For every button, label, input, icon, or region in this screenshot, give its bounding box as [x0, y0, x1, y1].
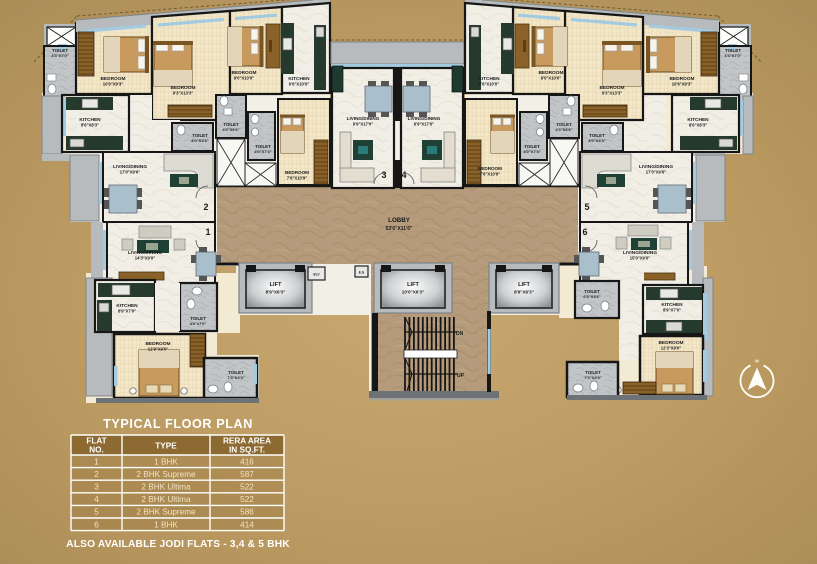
svg-text:2 BHK Supreme: 2 BHK Supreme	[136, 470, 196, 479]
svg-text:4'6"x7'0": 4'6"x7'0"	[190, 321, 207, 326]
svg-text:NO.: NO.	[89, 446, 104, 455]
svg-text:4'0"X7'3": 4'0"X7'3"	[254, 149, 271, 154]
svg-text:DN: DN	[456, 331, 464, 337]
svg-text:N: N	[755, 359, 759, 365]
svg-text:2: 2	[94, 470, 99, 479]
svg-text:8'9"X6'3": 8'9"X6'3"	[266, 290, 286, 295]
svg-text:3: 3	[381, 170, 386, 180]
svg-text:UP: UP	[457, 373, 465, 379]
svg-text:8'6"X8'3": 8'6"X8'3"	[81, 122, 99, 127]
svg-text:2 BHK Ultima: 2 BHK Ultima	[141, 495, 191, 504]
svg-text:ELV: ELV	[313, 273, 320, 277]
svg-text:17'0"X9'6": 17'0"X9'6"	[120, 169, 140, 174]
svg-text:522: 522	[240, 483, 254, 492]
svg-text:6: 6	[582, 227, 587, 237]
svg-text:10'6"X9'3": 10'6"X9'3"	[672, 81, 692, 86]
svg-text:1 BHK: 1 BHK	[154, 457, 178, 466]
svg-text:4'3"X7'0": 4'3"X7'0"	[724, 53, 741, 58]
svg-text:10'0"X6'3": 10'0"X6'3"	[402, 290, 424, 295]
svg-text:LOBBY: LOBBY	[388, 217, 411, 224]
svg-text:9'0"X10'0": 9'0"X10'0"	[541, 75, 561, 80]
svg-text:RERA AREA: RERA AREA	[223, 437, 271, 446]
svg-text:1: 1	[94, 457, 99, 466]
svg-text:9'0"X10'0": 9'0"X10'0"	[234, 75, 254, 80]
svg-text:LIVING/DINING: LIVING/DINING	[408, 116, 441, 121]
svg-text:2 BHK Supreme: 2 BHK Supreme	[136, 508, 196, 517]
svg-text:9'3"X13'3": 9'3"X13'3"	[173, 90, 193, 95]
svg-text:2: 2	[203, 202, 208, 212]
svg-text:7'3"X4'3": 7'3"X4'3"	[227, 375, 244, 380]
svg-text:12'9"X9'0": 12'9"X9'0"	[148, 346, 168, 351]
svg-text:6'5"X4'6": 6'5"X4'6"	[583, 294, 600, 299]
svg-text:9'9"X17'0": 9'9"X17'0"	[353, 121, 373, 126]
svg-text:9'3"X13'3": 9'3"X13'3"	[602, 90, 622, 95]
svg-text:5: 5	[584, 202, 589, 212]
svg-text:BEDROOM: BEDROOM	[478, 166, 502, 171]
svg-text:12'3"X9'0": 12'3"X9'0"	[661, 345, 681, 350]
svg-text:LIFT: LIFT	[270, 282, 282, 288]
svg-text:414: 414	[240, 520, 254, 529]
svg-text:4'0"X7'3": 4'0"X7'3"	[523, 149, 540, 154]
svg-text:8'0"X4'3": 8'0"X4'3"	[191, 138, 208, 143]
svg-text:E.G: E.G	[359, 271, 365, 275]
svg-text:4'3"X7'0": 4'3"X7'0"	[51, 53, 68, 58]
svg-text:6'6"X10'0": 6'6"X10'0"	[289, 81, 309, 86]
svg-text:1: 1	[205, 227, 210, 237]
svg-text:9'9"X17'0": 9'9"X17'0"	[414, 121, 434, 126]
svg-text:15'0"X9'0": 15'0"X9'0"	[630, 255, 650, 260]
svg-text:416: 416	[240, 457, 254, 466]
svg-text:5: 5	[94, 508, 99, 517]
svg-text:7'6"X10'9": 7'6"X10'9"	[287, 175, 307, 180]
svg-text:TYPE: TYPE	[155, 442, 177, 451]
svg-text:8'9"X6'3": 8'9"X6'3"	[514, 290, 534, 295]
svg-text:IN SQ.FT.: IN SQ.FT.	[229, 446, 265, 455]
svg-text:522: 522	[240, 495, 254, 504]
svg-text:4: 4	[94, 495, 99, 504]
svg-text:53'6"X11'6": 53'6"X11'6"	[386, 226, 413, 232]
svg-text:10'6"X9'3": 10'6"X9'3"	[103, 81, 123, 86]
svg-text:3: 3	[94, 483, 99, 492]
svg-text:6: 6	[94, 520, 99, 529]
svg-text:587: 587	[240, 470, 254, 479]
svg-text:2 BHK Ultima: 2 BHK Ultima	[141, 483, 191, 492]
svg-text:586: 586	[240, 508, 254, 517]
svg-text:4'0"X6'6": 4'0"X6'6"	[555, 127, 572, 132]
svg-text:LIFT: LIFT	[407, 282, 419, 288]
svg-text:LIFT: LIFT	[518, 282, 530, 288]
svg-text:8'6"X8'3": 8'6"X8'3"	[689, 122, 707, 127]
svg-text:17'0"X9'6": 17'0"X9'6"	[646, 169, 666, 174]
svg-text:8'0"X4'3": 8'0"X4'3"	[588, 138, 605, 143]
svg-text:1 BHK: 1 BHK	[154, 520, 178, 529]
svg-text:ALSO AVAILABLE JODI FLATS - 3,: ALSO AVAILABLE JODI FLATS - 3,4 & 5 BHK	[66, 539, 290, 550]
svg-text:14'3"X9'0": 14'3"X9'0"	[135, 255, 155, 260]
svg-text:4: 4	[401, 170, 406, 180]
svg-text:8'9"X7'0": 8'9"X7'0"	[663, 307, 681, 312]
svg-text:8'9"X7'0": 8'9"X7'0"	[118, 308, 136, 313]
svg-text:LIVING/DINING: LIVING/DINING	[347, 116, 380, 121]
svg-text:7'3"X4'3": 7'3"X4'3"	[584, 375, 601, 380]
svg-text:BEDROOM: BEDROOM	[285, 170, 309, 175]
svg-text:7'6"X10'9": 7'6"X10'9"	[480, 171, 500, 176]
svg-text:6'6"X10'0": 6'6"X10'0"	[479, 81, 499, 86]
svg-text:4'0"X6'6": 4'0"X6'6"	[222, 127, 239, 132]
svg-text:FLAT: FLAT	[86, 437, 106, 446]
svg-text:TYPICAL FLOOR PLAN: TYPICAL FLOOR PLAN	[103, 417, 253, 431]
